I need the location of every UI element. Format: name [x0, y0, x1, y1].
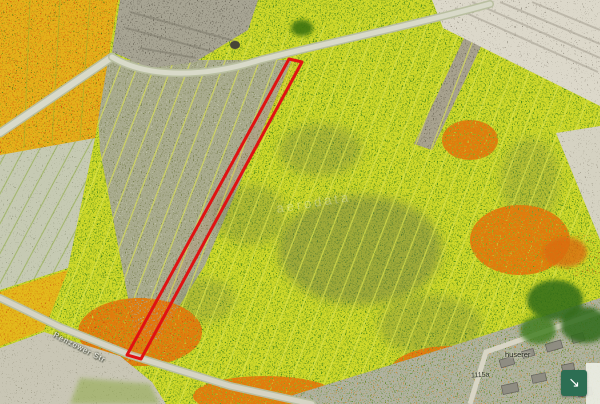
map-viewport[interactable]: Renzower Str huserer 1115a aerodata ↘	[0, 0, 600, 404]
ndvi-map-canvas[interactable]	[0, 0, 600, 404]
arrow-down-right-icon: ↘	[568, 376, 580, 390]
collapsed-panel-corner	[586, 363, 600, 404]
expand-panel-button[interactable]: ↘	[561, 370, 587, 396]
